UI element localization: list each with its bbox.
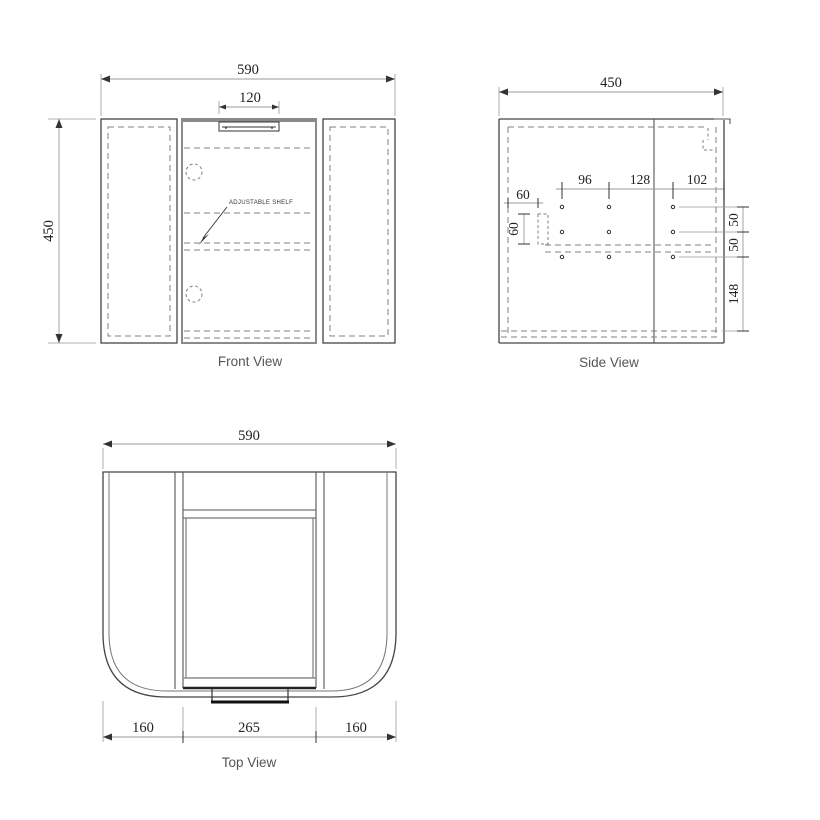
side-view: 450 96 128 10 [499,75,749,370]
side-wall-bracket [538,214,548,244]
side-dim-60v: 60 [506,222,521,236]
top-door-width-dim: 265 [238,720,260,736]
side-dim-96: 96 [578,172,592,187]
technical-drawing-page: 590 120 450 AD [0,0,820,820]
side-dim-50a: 50 [726,213,741,227]
top-view: 590 160 265 160 Top View [103,428,396,770]
front-left-wing [101,119,177,343]
side-pin-holes [560,205,674,258]
front-handle-mark [225,127,227,129]
front-door [182,119,316,343]
front-width-dim: 590 [237,62,259,78]
shelf-note: ADJUSTABLE SHELF [229,200,293,206]
top-benchtop-outline [103,472,396,697]
side-dim-128: 128 [630,172,651,187]
front-right-wing [323,119,395,343]
top-left-wing-dim: 160 [132,720,154,736]
side-dim-148: 148 [726,284,741,305]
shelf-leader-line [203,207,227,238]
front-view: 590 120 450 AD [41,62,395,369]
side-top-lip [714,119,730,124]
top-benchtop-inner-edge [109,472,387,691]
side-dim-60h: 60 [516,187,530,202]
side-view-label: Side View [579,355,639,370]
side-dim-102: 102 [687,172,707,187]
front-height-dim: 450 [41,220,57,242]
top-right-wing-dim: 160 [345,720,367,736]
front-hinge-hole-top [186,164,202,180]
top-view-label: Top View [222,755,277,770]
front-right-wing-hidden [330,127,388,336]
side-hidden-handle-hook [703,140,713,150]
side-depth-dim: 450 [600,75,622,91]
front-left-wing-hidden [108,127,170,336]
front-handle-mark [271,127,273,129]
drawing-canvas: 590 120 450 AD [0,0,820,820]
front-handle-dim: 120 [239,90,261,106]
side-dim-50b: 50 [726,238,741,252]
top-width-dim: 590 [238,428,260,444]
front-view-label: Front View [218,354,283,369]
front-hinge-hole-bottom [186,286,202,302]
